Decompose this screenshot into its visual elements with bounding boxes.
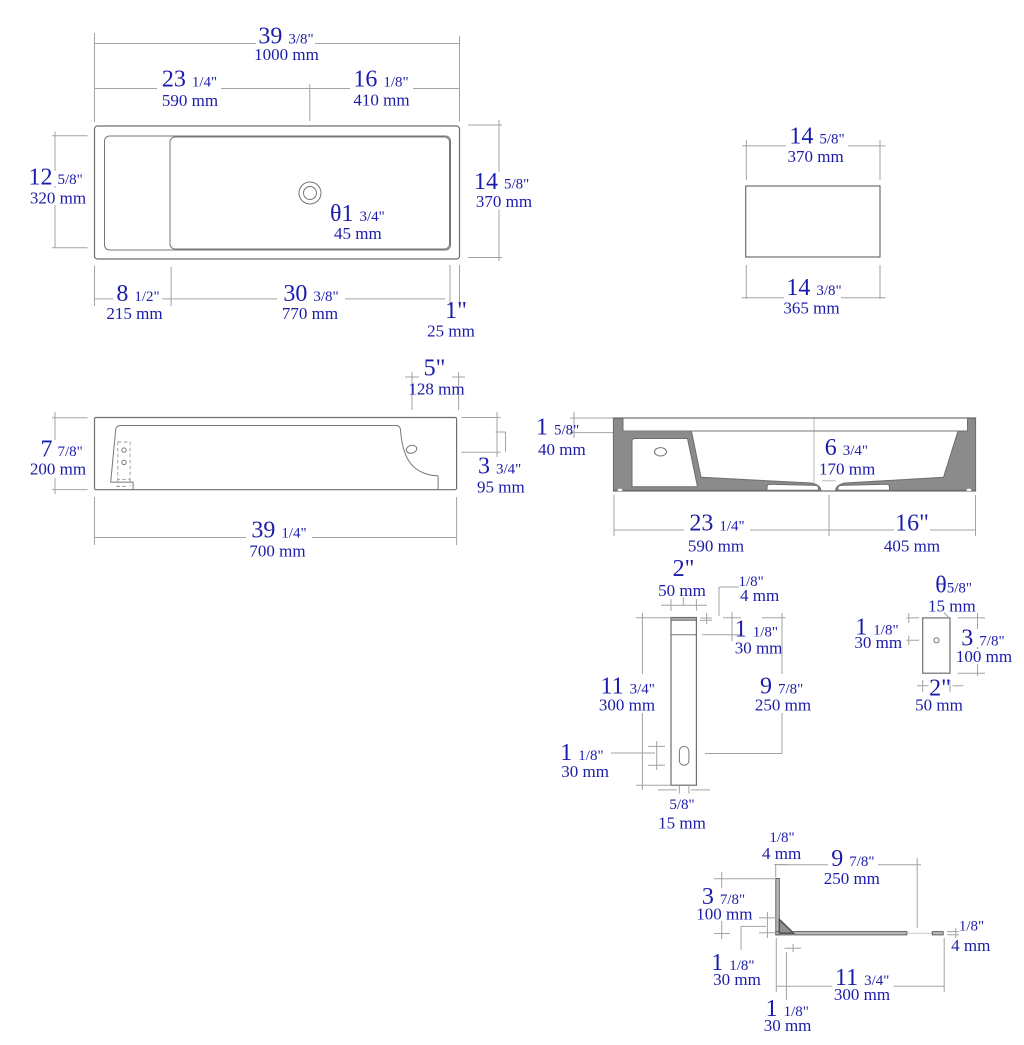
svg-text:15 mm: 15 mm [658, 814, 706, 833]
svg-text:5/8": 5/8" [58, 172, 83, 188]
svg-text:50 mm: 50 mm [915, 696, 963, 715]
svg-text:30 mm: 30 mm [713, 970, 761, 989]
svg-text:590 mm: 590 mm [688, 537, 744, 556]
svg-text:5/8": 5/8" [504, 177, 529, 193]
svg-text:4 mm: 4 mm [951, 936, 990, 955]
svg-text:370 mm: 370 mm [787, 147, 843, 166]
svg-text:365 mm: 365 mm [783, 299, 839, 318]
svg-text:12: 12 [29, 165, 53, 191]
svg-text:5/8": 5/8" [669, 797, 694, 813]
svg-text:250 mm: 250 mm [824, 869, 880, 888]
svg-text:128 mm: 128 mm [408, 380, 464, 399]
svg-text:5": 5" [424, 356, 446, 382]
svg-text:30 mm: 30 mm [561, 762, 609, 781]
svg-text:50 mm: 50 mm [658, 581, 706, 600]
svg-text:1000 mm: 1000 mm [254, 45, 319, 64]
svg-text:4 mm: 4 mm [762, 844, 801, 863]
svg-text:30 mm: 30 mm [764, 1016, 812, 1035]
svg-text:770 mm: 770 mm [282, 304, 338, 323]
svg-text:25 mm: 25 mm [427, 322, 475, 341]
svg-text:300 mm: 300 mm [834, 985, 890, 1004]
svg-text:16": 16" [895, 511, 929, 537]
svg-text:30 mm: 30 mm [854, 633, 902, 652]
svg-text:410 mm: 410 mm [353, 91, 409, 110]
svg-text:95 mm: 95 mm [477, 478, 525, 497]
svg-text:200 mm: 200 mm [30, 460, 86, 479]
svg-text:45 mm: 45 mm [334, 224, 382, 243]
svg-text:15 mm: 15 mm [928, 597, 976, 616]
svg-text:170 mm: 170 mm [819, 460, 875, 479]
svg-text:250 mm: 250 mm [755, 696, 811, 715]
svg-text:4 mm: 4 mm [740, 586, 779, 605]
svg-text:215 mm: 215 mm [106, 304, 162, 323]
svg-text:405 mm: 405 mm [884, 537, 940, 556]
svg-text:300 mm: 300 mm [599, 696, 655, 715]
svg-text:590 mm: 590 mm [162, 91, 218, 110]
svg-text:40 mm: 40 mm [538, 440, 586, 459]
svg-text:2": 2" [673, 556, 695, 582]
svg-text:7/8": 7/8" [58, 444, 83, 460]
svg-text:1/8": 1/8" [959, 919, 984, 935]
svg-text:370 mm: 370 mm [476, 192, 532, 211]
svg-text:100 mm: 100 mm [696, 905, 752, 924]
svg-text:320 mm: 320 mm [30, 189, 86, 208]
svg-text:30 mm: 30 mm [735, 639, 783, 658]
svg-text:100 mm: 100 mm [956, 647, 1012, 666]
svg-text:700 mm: 700 mm [249, 542, 305, 561]
svg-text:1": 1" [445, 298, 467, 324]
